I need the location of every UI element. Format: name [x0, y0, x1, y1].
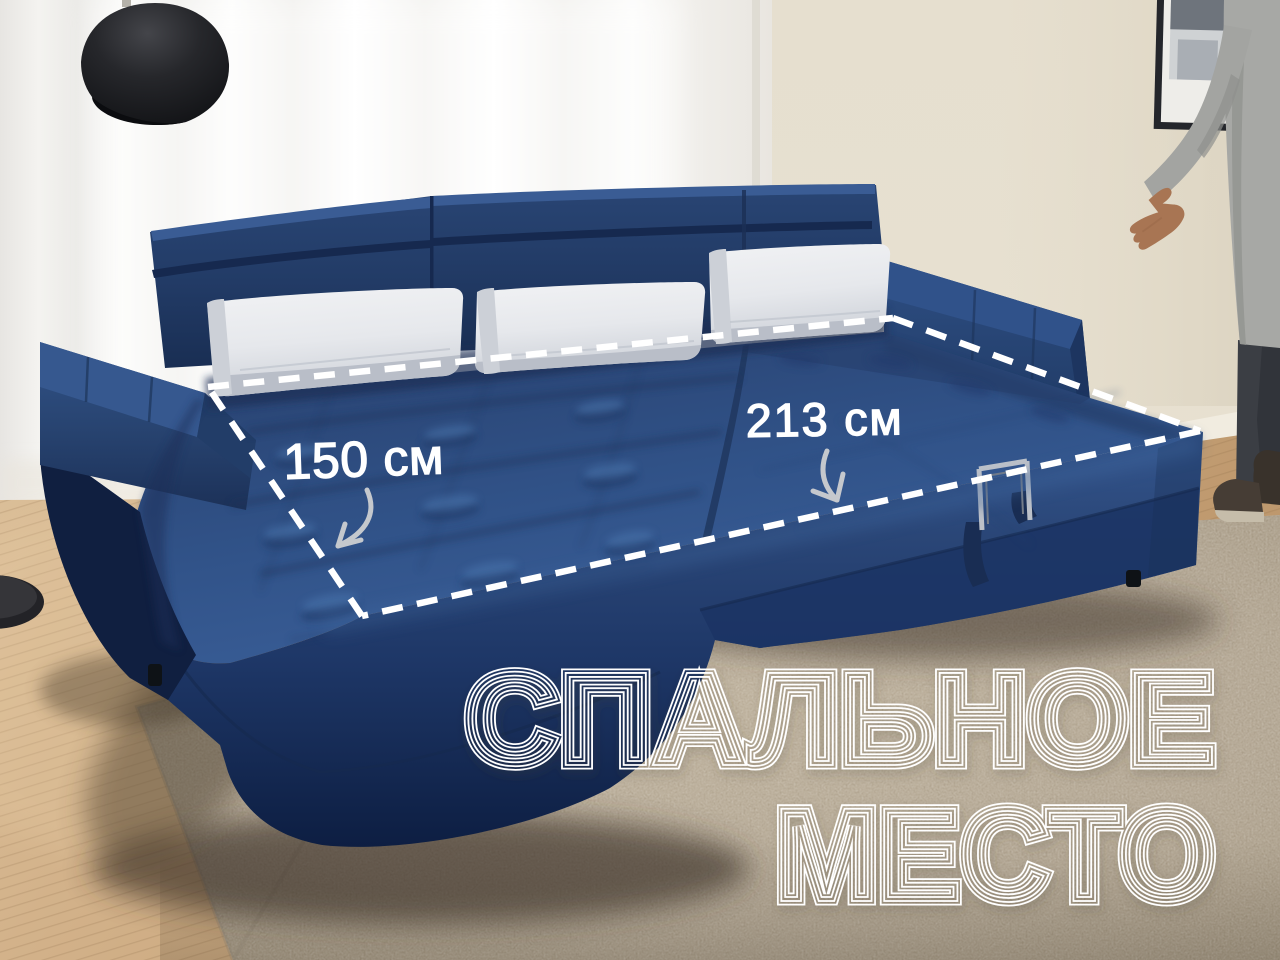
svg-text:150 см: 150 см	[282, 428, 444, 490]
svg-text:213 см: 213 см	[745, 391, 902, 447]
